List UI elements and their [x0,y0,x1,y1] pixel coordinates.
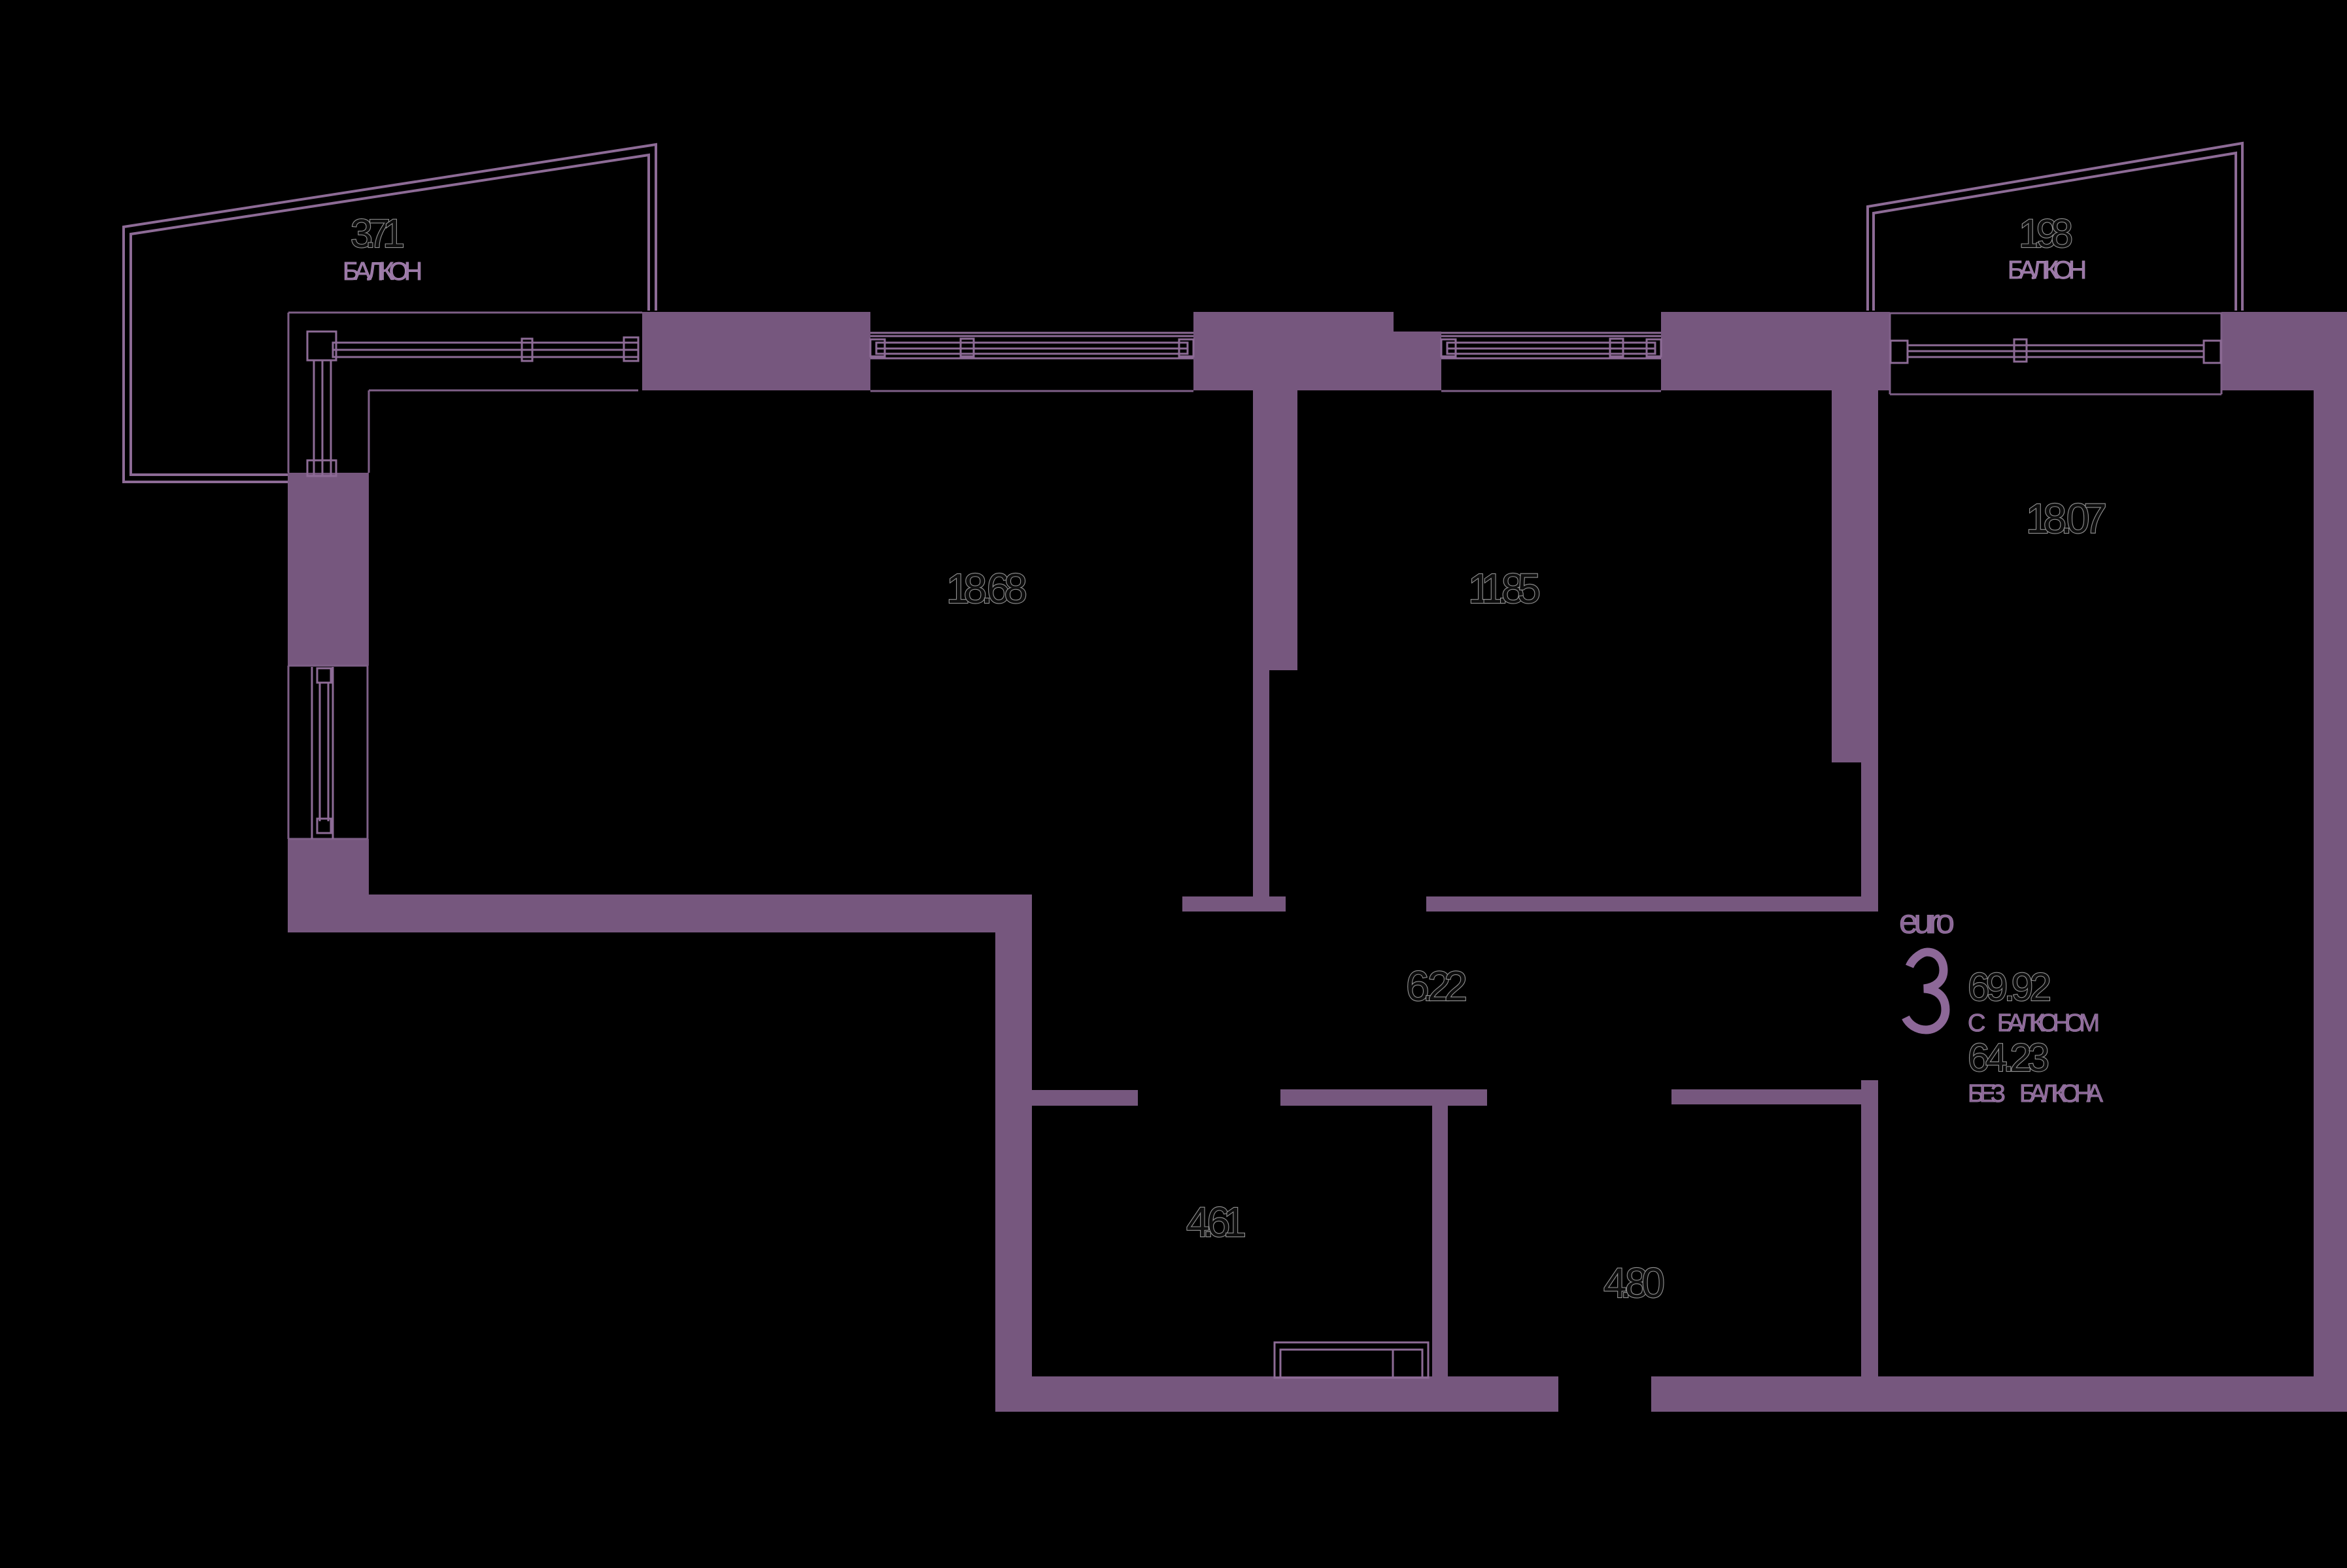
svg-text:18.07: 18.07 [2026,495,2107,542]
svg-text:БАЛКОНА: БАЛКОНА [2019,1080,2104,1108]
svg-text:БАЛКОН: БАЛКОН [343,258,422,286]
svg-text:С: С [1968,1010,1985,1037]
svg-text:4.80: 4.80 [1603,1259,1665,1306]
svg-text:БЕЗ: БЕЗ [1968,1080,2006,1108]
svg-text:БАЛКОН: БАЛКОН [2008,256,2087,284]
svg-text:euro: euro [1899,903,1955,941]
svg-text:69.92: 69.92 [1968,965,2051,1009]
svg-text:11.85: 11.85 [1468,565,1541,612]
svg-text:3.71: 3.71 [351,211,405,256]
svg-text:4.61: 4.61 [1186,1199,1246,1246]
svg-text:1.98: 1.98 [2019,211,2073,256]
svg-text:18.68: 18.68 [946,565,1027,612]
svg-text:БАЛКОНОМ: БАЛКОНОМ [1997,1010,2100,1037]
svg-text:64.23: 64.23 [1968,1036,2049,1080]
svg-text:6.22: 6.22 [1406,963,1467,1010]
